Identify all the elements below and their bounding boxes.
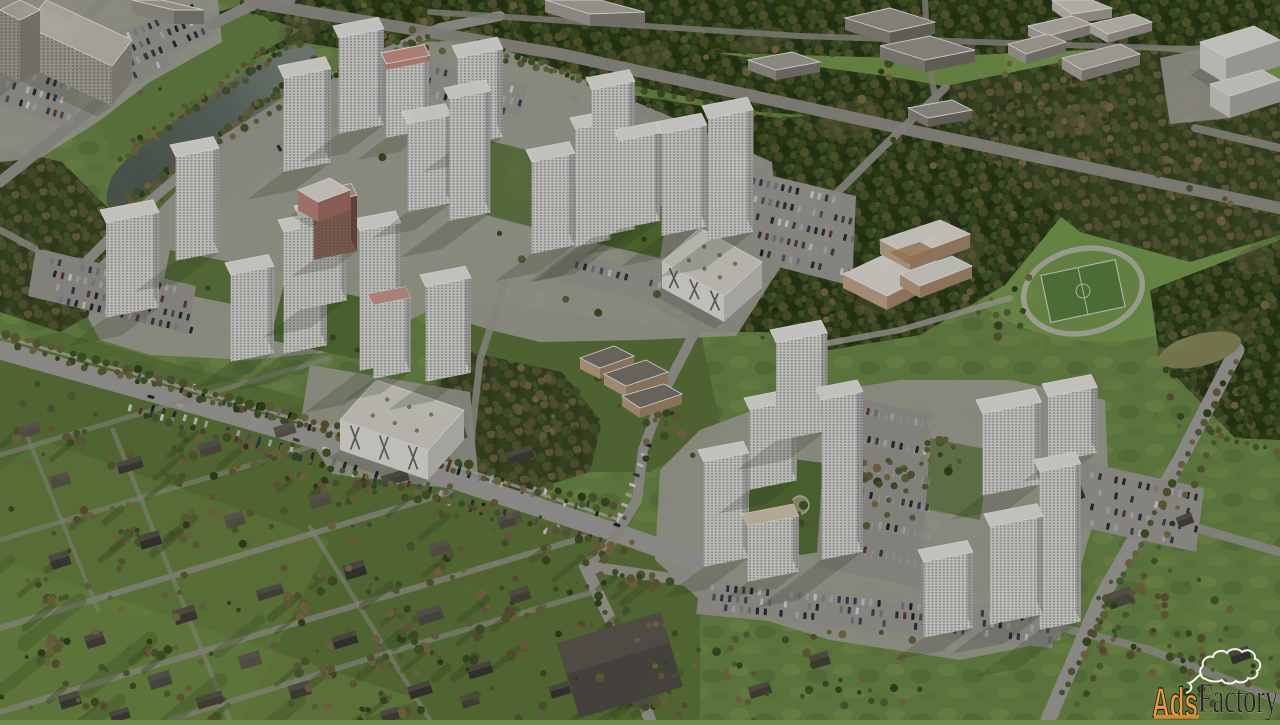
svg-text:Factory: Factory xyxy=(1198,676,1278,720)
svg-text:Ads: Ads xyxy=(1152,679,1198,720)
